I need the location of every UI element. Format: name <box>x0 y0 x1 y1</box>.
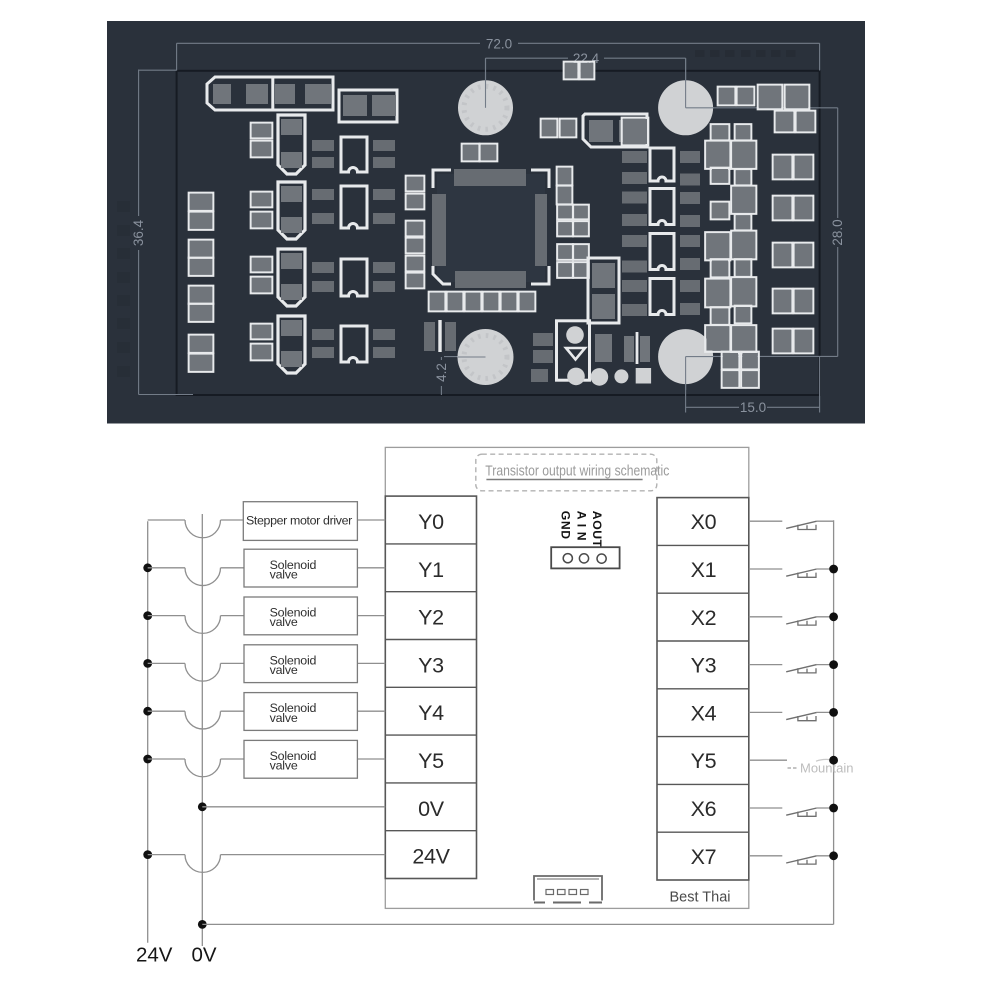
svg-text:valve: valve <box>270 615 298 629</box>
svg-text:Best Thai: Best Thai <box>670 890 731 906</box>
svg-text:valve: valve <box>270 711 298 725</box>
svg-text:28.0: 28.0 <box>830 219 845 245</box>
svg-text:0V: 0V <box>191 943 216 966</box>
svg-text:X6: X6 <box>691 797 717 821</box>
svg-text:Y0: Y0 <box>418 510 444 534</box>
svg-text:Y3: Y3 <box>418 653 444 677</box>
svg-text:Y4: Y4 <box>418 701 444 725</box>
svg-text:X2: X2 <box>691 606 717 630</box>
svg-text:A I N: A I N <box>574 511 588 541</box>
svg-text:X0: X0 <box>691 510 717 534</box>
svg-text:Y5: Y5 <box>418 749 444 773</box>
svg-text:Transistor output wiring schem: Transistor output wiring schematic <box>485 463 669 480</box>
svg-text:Stepper motor driver: Stepper motor driver <box>246 514 352 528</box>
svg-text:Y3: Y3 <box>691 654 717 678</box>
svg-text:X1: X1 <box>691 558 717 582</box>
svg-text:36.4: 36.4 <box>131 219 146 246</box>
svg-text:valve: valve <box>270 567 298 581</box>
svg-text:Y5: Y5 <box>691 749 717 773</box>
svg-text:4.2: 4.2 <box>434 363 449 382</box>
svg-text:0V: 0V <box>418 797 445 821</box>
svg-text:X7: X7 <box>691 845 717 869</box>
svg-text:GND: GND <box>558 511 572 540</box>
svg-text:72.0: 72.0 <box>486 36 512 51</box>
svg-text:24V: 24V <box>412 845 450 869</box>
svg-text:valve: valve <box>270 759 298 773</box>
svg-text:15.0: 15.0 <box>740 400 766 415</box>
svg-text:Y2: Y2 <box>418 606 444 630</box>
svg-text:Mountain: Mountain <box>800 761 853 776</box>
svg-text:24V: 24V <box>136 943 173 966</box>
svg-text:valve: valve <box>270 663 298 677</box>
svg-text:Y1: Y1 <box>418 558 444 582</box>
svg-text:AOUT: AOUT <box>590 511 604 548</box>
svg-text:X4: X4 <box>691 701 717 725</box>
